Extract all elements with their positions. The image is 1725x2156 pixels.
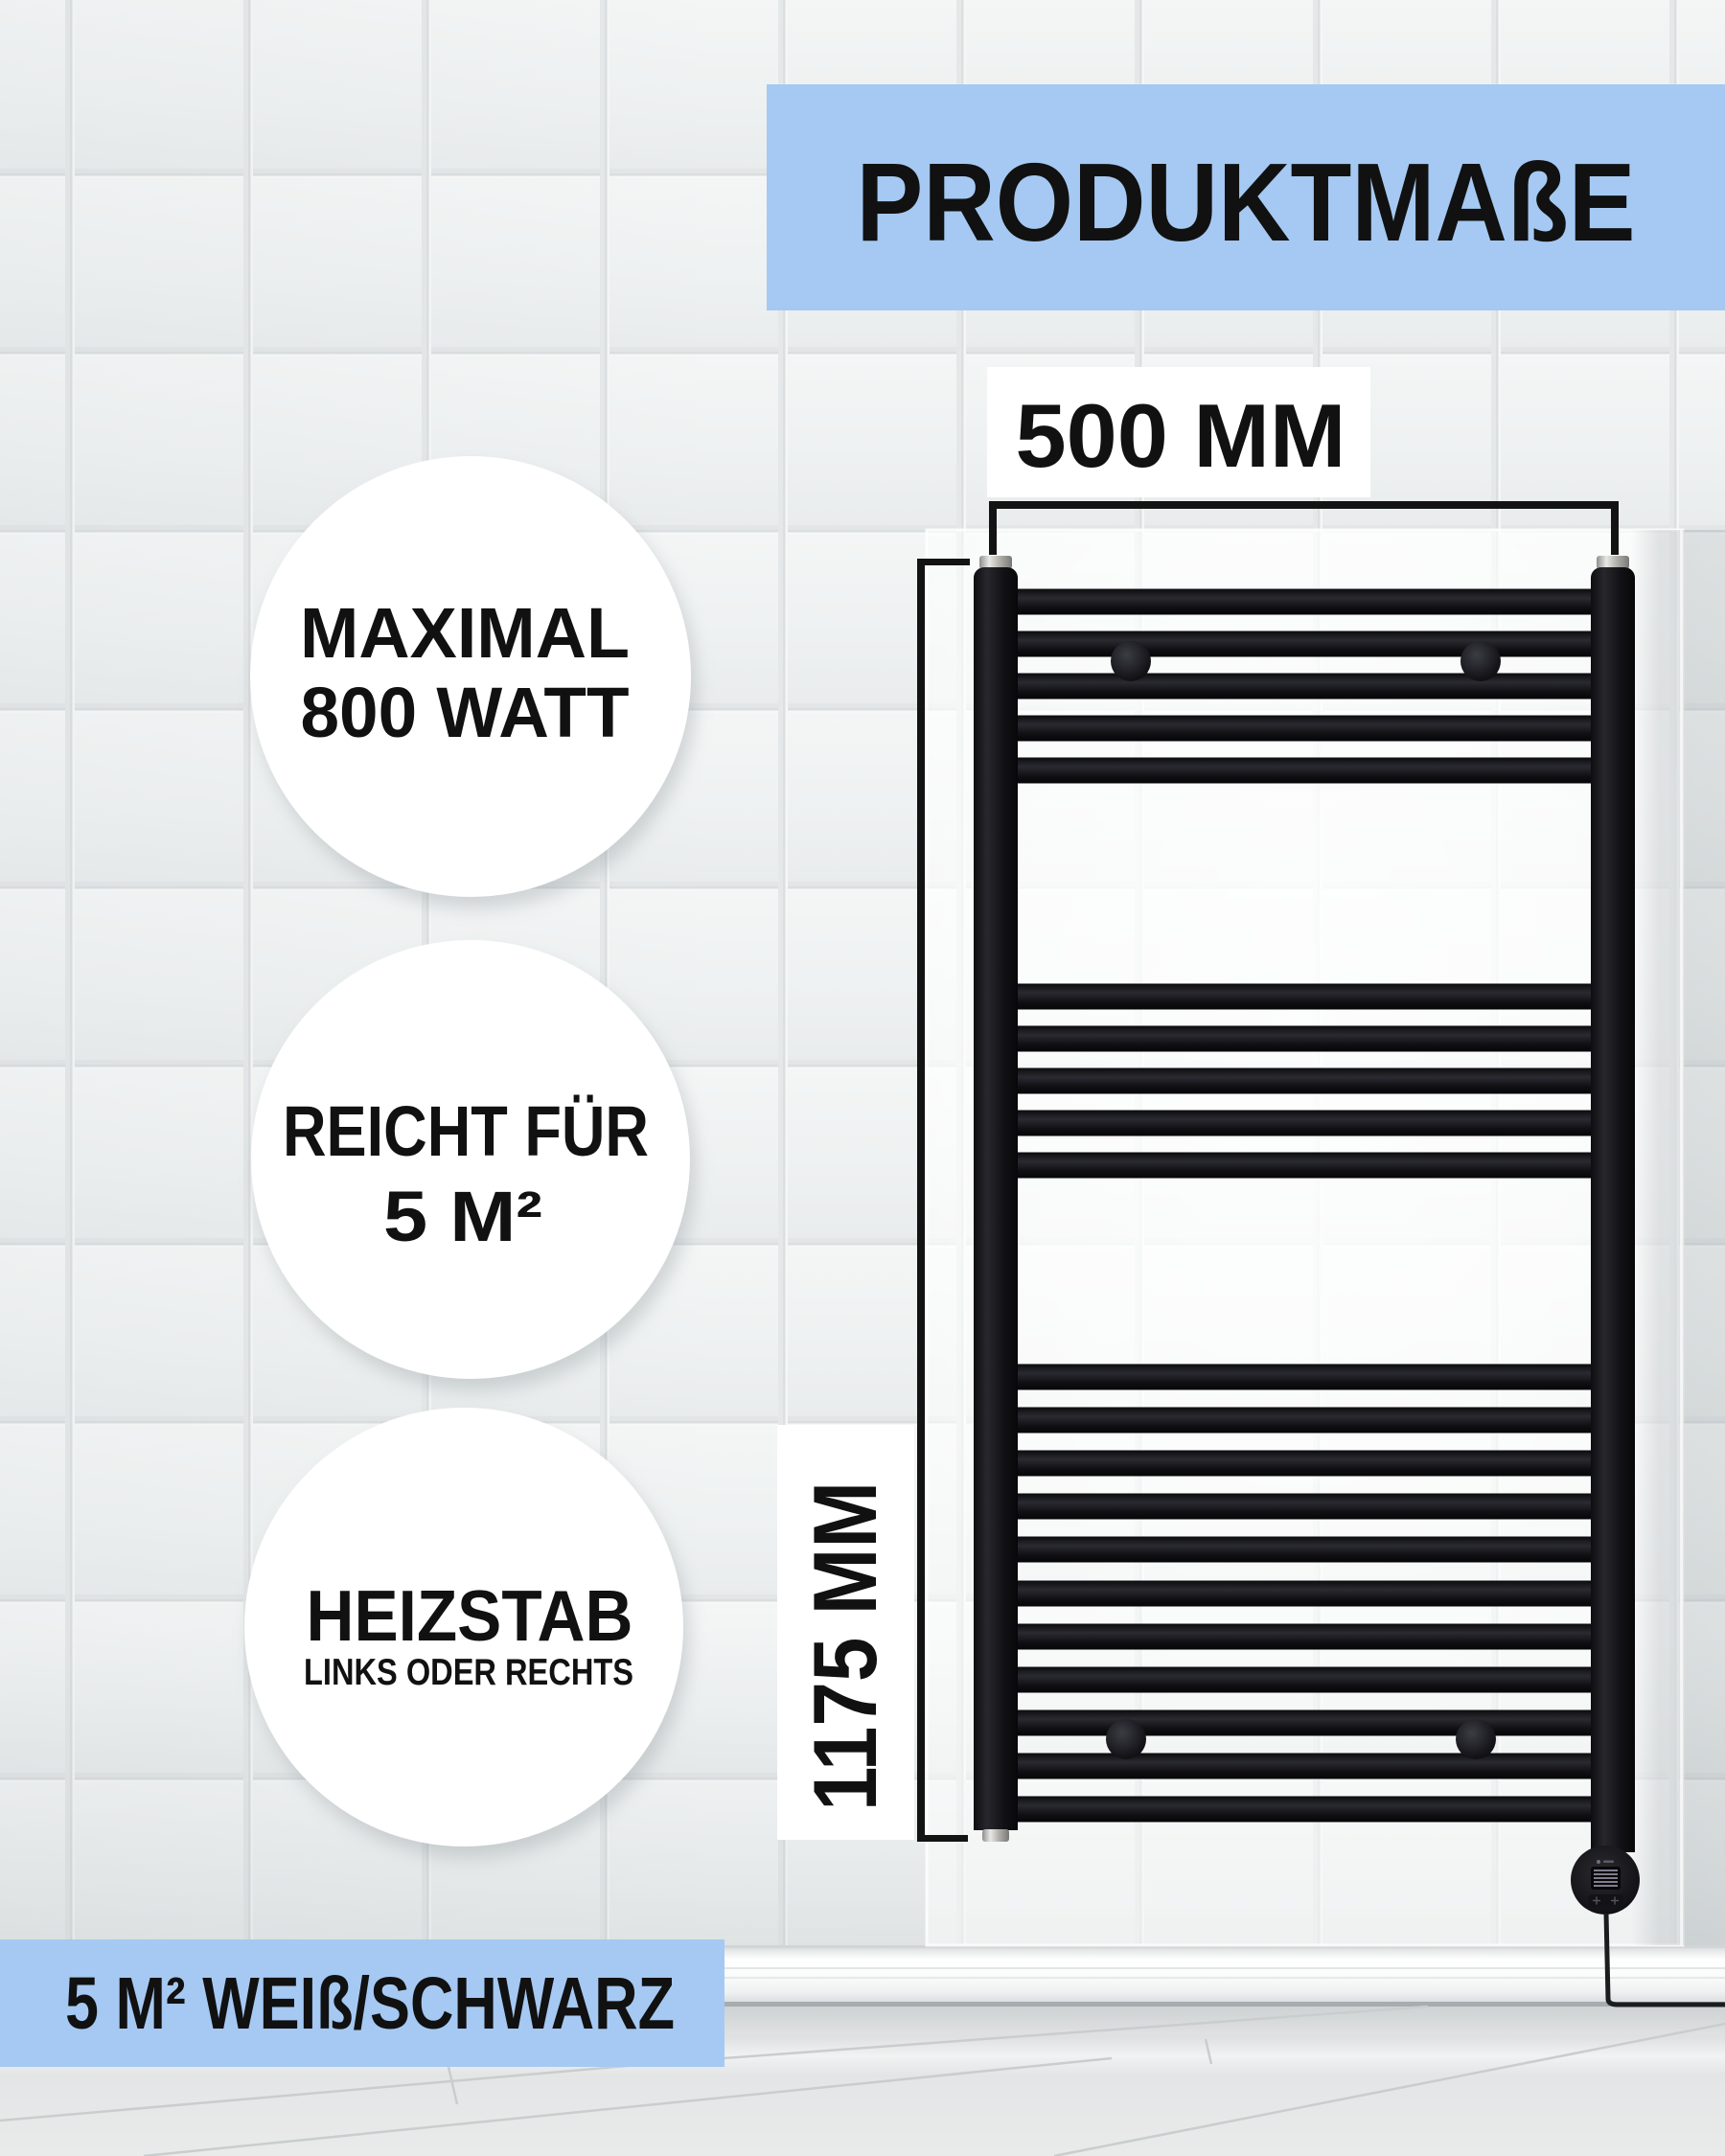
svg-text:800 WATT: 800 WATT (301, 673, 630, 752)
svg-text:1175 MM: 1175 MM (794, 1481, 895, 1811)
svg-text:5 M²: 5 M² (383, 1177, 542, 1256)
svg-text:REICHT FÜR: REICHT FÜR (283, 1091, 649, 1171)
svg-text:LINKS ODER RECHTS: LINKS ODER RECHTS (304, 1652, 633, 1693)
svg-text:5 M² WEIß/SCHWARZ: 5 M² WEIß/SCHWARZ (65, 1962, 675, 2045)
svg-text:MAXIMAL: MAXIMAL (300, 593, 630, 673)
svg-text:500 MM: 500 MM (1016, 385, 1346, 486)
svg-text:HEIZSTAB: HEIZSTAB (307, 1575, 633, 1656)
svg-text:PRODUKTMAßE: PRODUKTMAßE (857, 140, 1636, 264)
